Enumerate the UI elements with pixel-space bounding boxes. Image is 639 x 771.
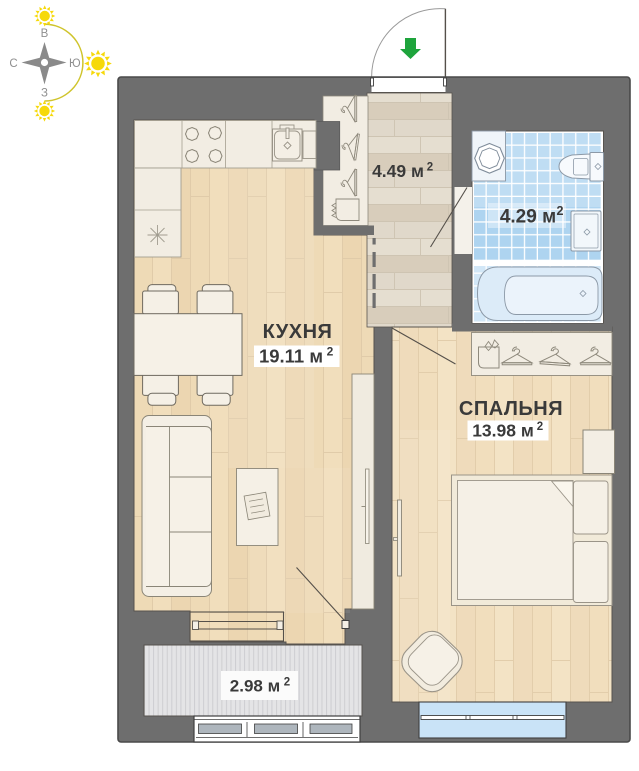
svg-text:В: В <box>41 28 49 40</box>
svg-text:С: С <box>9 58 17 70</box>
svg-text:13.98 м: 13.98 м <box>472 421 534 441</box>
svg-text:4.29 м: 4.29 м <box>500 207 556 228</box>
svg-text:2.98 м: 2.98 м <box>230 677 280 696</box>
svg-text:19.11 м: 19.11 м <box>259 346 323 367</box>
svg-text:2: 2 <box>327 345 334 359</box>
svg-text:2: 2 <box>557 204 564 218</box>
svg-text:КУХНЯ: КУХНЯ <box>263 321 333 343</box>
svg-text:Ю: Ю <box>69 58 81 70</box>
svg-text:4.49 м: 4.49 м <box>372 161 424 181</box>
svg-text:2: 2 <box>427 162 433 174</box>
svg-text:З: З <box>41 88 48 100</box>
svg-text:2: 2 <box>284 677 290 689</box>
svg-text:2: 2 <box>537 421 543 433</box>
svg-text:СПАЛЬНЯ: СПАЛЬНЯ <box>459 398 563 420</box>
